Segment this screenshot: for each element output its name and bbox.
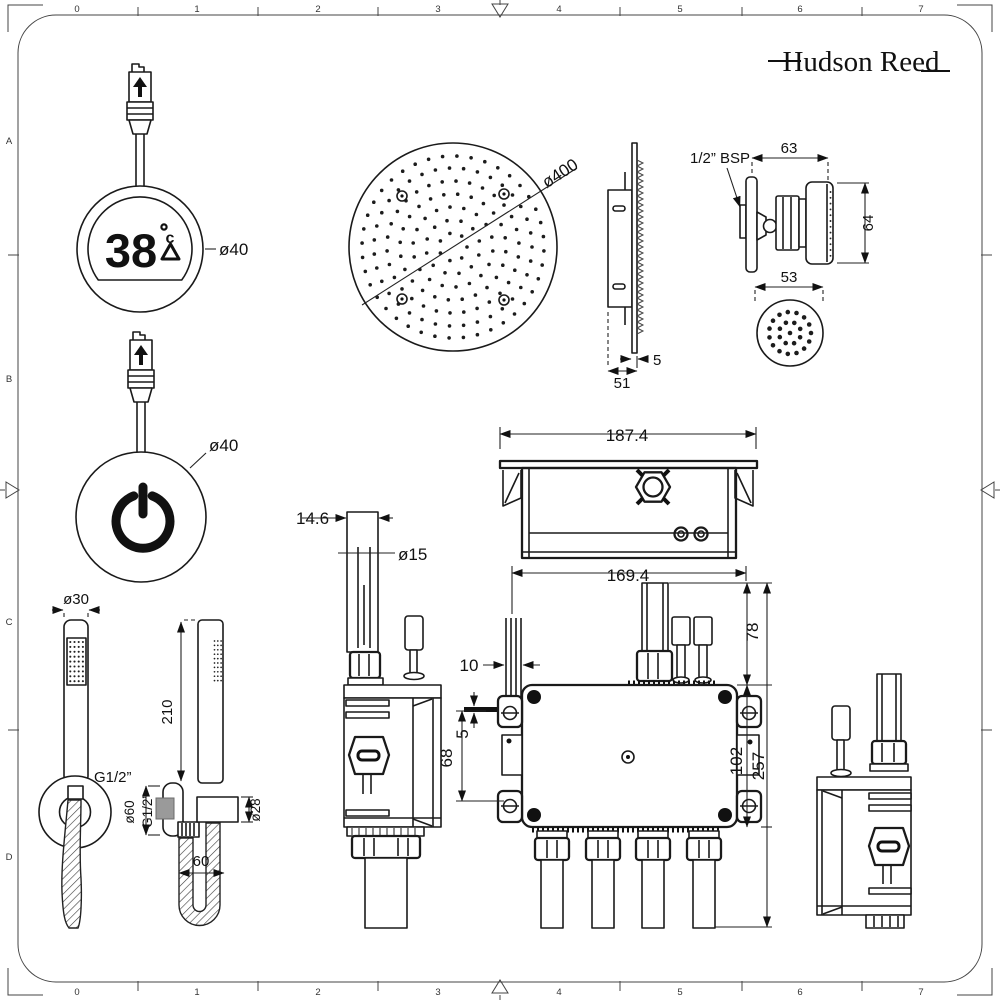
- bracket-block: [197, 797, 238, 822]
- jet-face-label: 53: [781, 269, 798, 286]
- corner-bracket-top-left: [8, 5, 43, 32]
- ruler-mark: 0: [74, 987, 79, 998]
- ruler-mark: D: [6, 852, 13, 863]
- temperature-value: 38: [105, 224, 157, 277]
- power-diameter-label: ø40: [209, 436, 238, 455]
- knurled-nut: [178, 822, 199, 837]
- ruler-mark: C: [6, 617, 13, 628]
- ruler-bottom: 0 1 2 3 4 5 6 7: [74, 980, 923, 1000]
- flange-dia-label: ø60: [122, 800, 137, 823]
- corner-bracket-bottom-left: [8, 968, 43, 995]
- outlet-thread-block: [156, 798, 174, 819]
- body-height-label: 102: [727, 747, 746, 775]
- ruler-mark: 4: [556, 4, 561, 15]
- ruler-mark: 5: [677, 987, 682, 998]
- handset-side-view: 210 ø60 G1/2” ø28 60: [122, 620, 263, 925]
- shower-head-front-view: ø400: [349, 143, 581, 351]
- hose-gap-label: 60: [193, 853, 210, 870]
- valve-side-view-right: [817, 674, 911, 928]
- ribbed-washer: [347, 827, 424, 836]
- ruler-mark: 1: [194, 987, 199, 998]
- centre-marker-left: [6, 482, 19, 498]
- handset-thread-side-label: G1/2”: [140, 794, 155, 828]
- power-control: ø40: [76, 332, 238, 582]
- total-height-label: 257: [749, 752, 768, 780]
- ruler-mark: 0: [74, 4, 79, 15]
- handset-front-view: ø30 G1/2”: [39, 591, 132, 928]
- brand-name: Hudson Reed: [782, 46, 940, 78]
- thermostat-control: 38 c ø40: [77, 64, 248, 312]
- body-jet-front-view: 53: [755, 269, 823, 366]
- ruler-mark: A: [6, 136, 13, 147]
- ruler-mark: 3: [435, 4, 440, 15]
- ruler-mark: 7: [918, 987, 923, 998]
- head-depth-label: 51: [614, 375, 631, 392]
- recess-box-view: 187.4: [500, 426, 757, 558]
- ruler-mark: 6: [797, 4, 802, 15]
- handset-thread-front-label: G1/2”: [94, 769, 132, 786]
- ruler-mark: 3: [435, 987, 440, 998]
- head-diameter-label: ø400: [539, 155, 582, 192]
- handset-head-label: ø30: [63, 591, 89, 608]
- corner-bracket-top-right: [957, 5, 992, 32]
- nozzle-serration: [637, 160, 643, 334]
- ruler-mark: 2: [315, 987, 320, 998]
- ruler-mark: 6: [797, 987, 802, 998]
- shower-hose-loop: [179, 823, 220, 925]
- handset-length-label: 210: [159, 699, 176, 724]
- ruler-mark: B: [6, 374, 12, 385]
- body-jet-side-view: 1/2” BSP 63 64: [690, 140, 877, 272]
- inlet-height-label: 78: [743, 623, 762, 642]
- technical-drawing-sheet: 0 1 2 3 4 5 6 7 0 1 2 3 4 5 6 7: [0, 0, 1000, 1000]
- ruler-mark: 5: [677, 4, 682, 15]
- valve-side-view-left: 14.6 ø15: [296, 509, 441, 928]
- brand-logo: Hudson Reed: [768, 46, 950, 78]
- valve-front-view: 169.4: [437, 566, 772, 928]
- ruler-mark: 1: [194, 4, 199, 15]
- ruler-right: [981, 255, 1000, 730]
- plate-thickness-label: 5: [653, 352, 661, 369]
- ruler-mark: 2: [315, 4, 320, 15]
- centre-marker-right: [981, 482, 994, 498]
- drawing-canvas: 0 1 2 3 4 5 6 7 0 1 2 3 4 5 6 7: [0, 0, 1000, 1000]
- ruler-mark: 4: [556, 987, 561, 998]
- cable-gland: [636, 470, 670, 504]
- ruler-left: A B C D: [0, 136, 19, 863]
- ruler-mark: 7: [918, 4, 923, 15]
- valve-span-label: 169.4: [607, 566, 650, 585]
- thermostat-diameter-label: ø40: [219, 240, 248, 259]
- pipe-dia-label: ø15: [398, 545, 427, 564]
- ruler-top: 0 1 2 3 4 5 6 7: [74, 0, 923, 17]
- plug-connector-icon: [128, 332, 154, 454]
- box-width-label: 187.4: [606, 426, 649, 445]
- plug-connector-icon: [127, 64, 153, 186]
- shower-head-side-view: 5 51: [608, 143, 661, 392]
- bracket-dia-label: ø28: [248, 798, 263, 821]
- pipe-offset-label: 10: [460, 656, 479, 675]
- outlet-fittings: [535, 831, 721, 928]
- jet-width-label: 63: [781, 140, 798, 157]
- jet-thread-label: 1/2” BSP: [690, 150, 750, 167]
- jet-height-label: 64: [860, 215, 877, 232]
- corner-bracket-bottom-right: [957, 968, 992, 995]
